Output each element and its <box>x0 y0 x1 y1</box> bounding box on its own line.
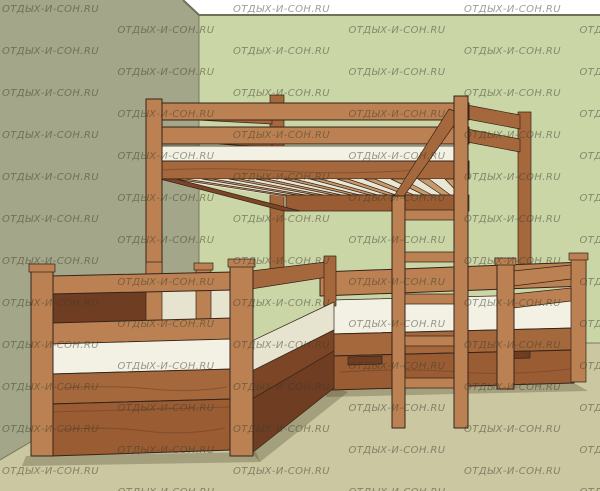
left-bed-far-corner-post <box>324 256 336 306</box>
post-cap <box>194 263 213 270</box>
product-image: ОТДЫХ-И-СОН.RUОТДЫХ-И-СОН.RUОТДЫХ-И-СОН.… <box>0 0 600 491</box>
left-bed-frame-rail <box>51 369 233 404</box>
loft-mattress <box>160 146 457 161</box>
left-bed-mattress-side <box>51 339 233 374</box>
ladder-rung <box>405 210 454 220</box>
loft-back-right-post <box>518 112 531 270</box>
post-cap <box>569 253 588 260</box>
left-bed-near-left-post <box>31 267 53 456</box>
loft-underside-back-rail <box>286 195 469 211</box>
ladder-rung <box>405 294 454 304</box>
post-cap <box>228 259 255 267</box>
left-bed-top-rail <box>51 272 233 294</box>
end-panel-front-post <box>497 261 514 389</box>
loft-guard-rail-1 <box>147 103 469 120</box>
ladder-rung <box>405 336 454 346</box>
end-panel-back-post <box>571 256 586 382</box>
left-bed-near-right-post <box>230 262 253 456</box>
post-cap <box>495 258 516 265</box>
left-bed-far-footboard-panel <box>50 292 148 325</box>
ladder-rung <box>405 252 454 262</box>
bunk-bed-product-render: ОТДЫХ-И-СОН.RUОТДЫХ-И-СОН.RUОТДЫХ-И-СОН.… <box>0 0 600 491</box>
ladder-rung <box>405 378 454 388</box>
post-cap <box>29 264 55 272</box>
drawer-handle-notch-left <box>348 356 382 365</box>
loft-guard-rail-2 <box>147 127 469 144</box>
loft-front-right-post <box>454 96 468 428</box>
ladder-left-stile <box>392 196 405 428</box>
